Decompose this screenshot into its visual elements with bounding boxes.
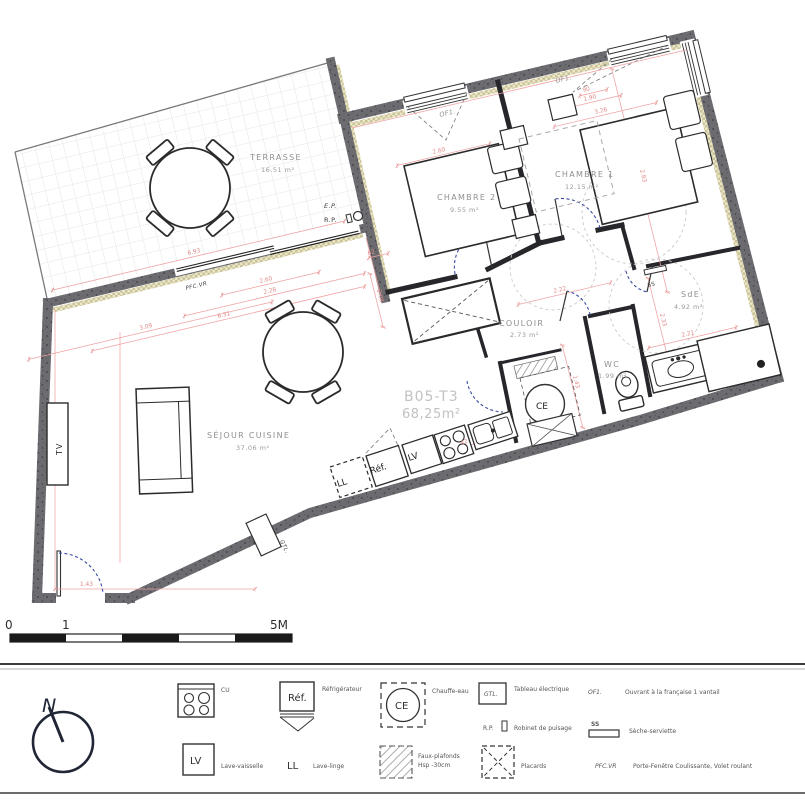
rp-label: R.P. xyxy=(324,216,337,224)
legend-ref-label: Réfrigérateur xyxy=(322,686,362,693)
legend-gtl: GTL. Tableau électrique xyxy=(479,683,569,704)
room-area-3: 4.92 m² xyxy=(674,303,703,311)
legend-placards-label: Placards xyxy=(521,763,546,770)
window-chambre1 xyxy=(606,35,672,67)
legend-rp-sym: R.P. xyxy=(483,725,494,732)
legend-lv-sym: LV xyxy=(190,756,201,767)
room-area-2: 12.15 m² xyxy=(565,183,599,191)
legend-ss-label: Sèche-serviette xyxy=(629,728,676,735)
north-arrow: N xyxy=(33,695,93,772)
gtl-box xyxy=(246,514,281,556)
legend-ce-sym: CE xyxy=(395,701,408,712)
legend-rp-label: Robinet de puisage xyxy=(514,725,572,732)
legend-ce: CE Chauffe-eau xyxy=(381,683,469,727)
floor-plan-page: TERRASSE16.51 m²CHAMBRE 29.55 m²CHAMBRE … xyxy=(0,0,805,800)
legend-ll-label: Lave-linge xyxy=(313,763,344,770)
room-area-6: 37.06 m² xyxy=(236,444,270,452)
legend: N CU Réf. Réfrigérateur CE Chauffe-eau G… xyxy=(33,682,753,778)
legend-pfcvr: PFC.VR Porte-Fenêtre Coulissante, Volet … xyxy=(595,763,753,770)
legend-gtl-label: Tableau électrique xyxy=(513,686,569,693)
room-label-3: SdE xyxy=(681,290,700,299)
legend-rp: R.P. Robinet de puisage xyxy=(483,721,572,732)
window-chambre2 xyxy=(402,83,470,116)
scale-one: 1 xyxy=(62,618,70,632)
north-label: N xyxy=(42,695,56,717)
sofa xyxy=(136,387,193,494)
legend-cu-label: CU xyxy=(221,687,230,694)
legend-fp-label2: Hsp -30cm xyxy=(418,762,450,769)
legend-pfcvr-label: Porte-Fenêtre Coulissante, Volet roulant xyxy=(633,763,753,770)
scale-five-m: 5M xyxy=(270,618,288,632)
room-label-4: WC xyxy=(604,360,620,369)
unit-area: 68,25m² xyxy=(402,407,461,422)
legend-cu: CU xyxy=(178,684,230,717)
dim-line-6 xyxy=(29,302,272,360)
dim-label-9: 90 xyxy=(582,86,591,94)
legend-ss: SS Sèche-serviette xyxy=(589,721,676,737)
room-label-6: SÉJOUR CUISINE xyxy=(207,429,290,440)
dim-label-7: 1.43 xyxy=(80,582,93,588)
ep-label: E.P. xyxy=(324,202,337,210)
room-area-1: 9.55 m² xyxy=(450,206,479,214)
tv-label: TV xyxy=(55,443,64,456)
room-area-0: 16.51 m² xyxy=(261,166,295,174)
legend-ll: LL Lave-linge xyxy=(287,761,344,772)
of1-chambre2: OF1. xyxy=(439,107,457,119)
legend-ref-sym: Réf. xyxy=(288,692,307,704)
unit-code: B05-T3 xyxy=(404,389,459,405)
room-label-0: TERRASSE xyxy=(249,153,302,162)
legend-of1-sym: OF1. xyxy=(588,689,602,696)
pfc-vr-label: PFC.VR xyxy=(185,281,208,292)
legend-refrigerateur: Réf. Réfrigérateur xyxy=(280,682,362,731)
lave-linge-box xyxy=(330,456,372,497)
window-chambre1-east xyxy=(680,38,711,99)
scale-bar: 0 1 5M xyxy=(5,618,292,642)
legend-gtl-sym: GTL. xyxy=(484,691,498,698)
legend-of1: OF1. Ouvrant à la française 1 vantail xyxy=(588,689,720,696)
legend-fp-label: Faux-plafonds xyxy=(418,753,460,760)
legend-ce-label: Chauffe-eau xyxy=(432,688,469,695)
ss-label: SS xyxy=(647,281,656,289)
legend-ss-sym: SS xyxy=(591,721,599,728)
legend-of1-label: Ouvrant à la française 1 vantail xyxy=(625,689,720,696)
dining-table xyxy=(263,300,343,404)
interior-walls xyxy=(388,82,738,441)
bed-chambre2 xyxy=(404,125,540,256)
terrace-table xyxy=(146,139,234,237)
scale-zero: 0 xyxy=(5,618,13,632)
kitchen-sink xyxy=(468,411,518,449)
room-label-1: CHAMBRE 2 xyxy=(437,193,496,202)
room-label-2: CHAMBRE 1 xyxy=(555,170,614,179)
legend-placards: Placards xyxy=(482,746,546,778)
room-area-4: 1.99 m² xyxy=(598,372,627,380)
legend-lv: LV Lave-vaisselle xyxy=(183,744,263,775)
legend-faux-plafonds: Faux-plafonds Hsp -30cm xyxy=(380,746,460,778)
legend-ll-sym: LL xyxy=(287,761,299,772)
ce-label: CE xyxy=(536,402,548,412)
room-label-5: COULOIR xyxy=(499,319,544,328)
bed-chambre1 xyxy=(548,90,713,225)
room-area-5: 2.73 m² xyxy=(510,331,539,339)
legend-lv-label: Lave-vaisselle xyxy=(221,763,263,770)
legend-pfcvr-sym: PFC.VR xyxy=(595,763,616,770)
floor-plan-drawing: TERRASSE16.51 m²CHAMBRE 29.55 m²CHAMBRE … xyxy=(0,0,805,800)
